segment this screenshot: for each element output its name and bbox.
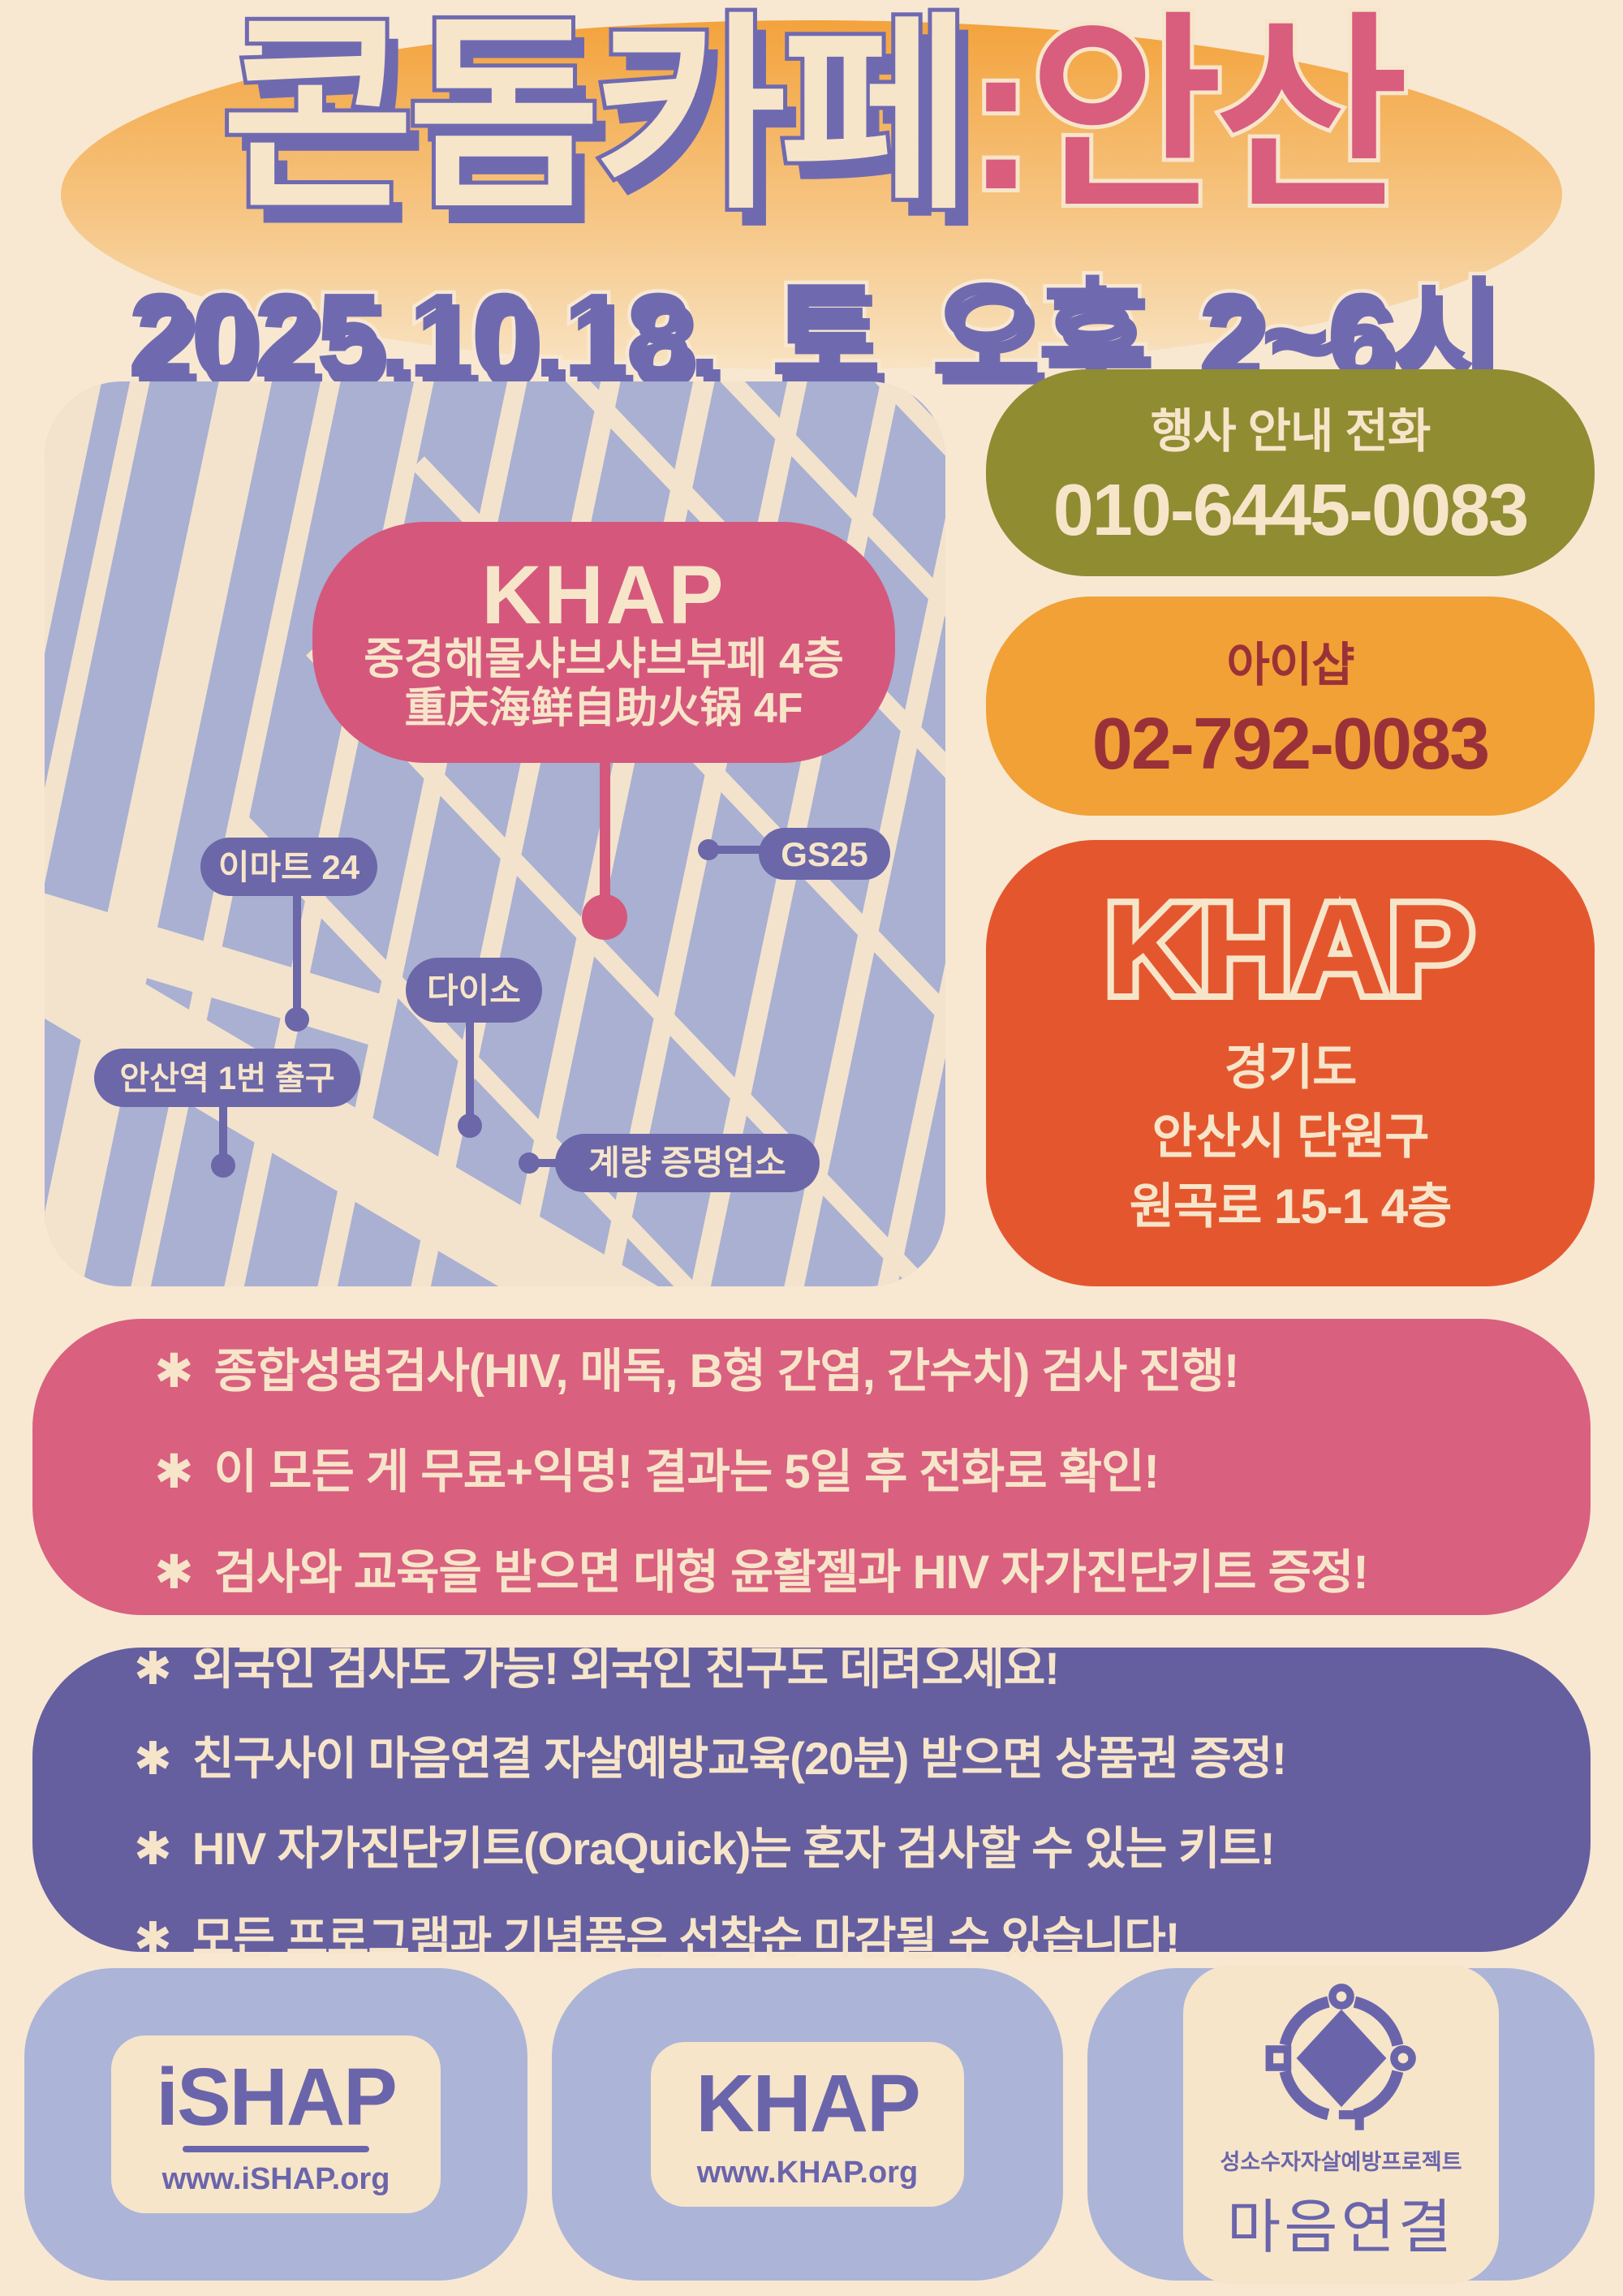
venue-name: KHAP	[1105, 885, 1475, 1014]
asterisk-bullet-icon: ✱	[134, 1822, 171, 1876]
footer-maum-box: 성소수자자살예방프로젝트 마음연결	[1087, 1968, 1595, 2281]
map-label-gs25: GS25	[781, 835, 867, 873]
callout-line1: 중경해물샤브샤브부페 4층	[364, 635, 844, 683]
venue-address-box: KHAP 경기도 안산시 단원구 원곡로 15-1 4층	[986, 840, 1595, 1286]
ishap-url: www.iSHAP.org	[156, 2162, 396, 2197]
ishap-phone-box: 아이샵 02-792-0083	[986, 597, 1595, 816]
emart-dot-icon	[285, 1007, 309, 1032]
callout-line2: 重庆海鲜自助火锅 4F	[404, 685, 803, 732]
map-label-daiso: 다이소	[427, 971, 521, 1010]
map-canvas: KHAP 중경해물샤브샤브부페 4층 重庆海鲜自助火锅 4F 이마트 24 GS…	[45, 381, 945, 1286]
khap-url: www.KHAP.org	[695, 2156, 919, 2190]
khap-logo-text: KHAP	[695, 2063, 919, 2144]
event-poster: 콘돔카페:안산 2025.10.18. 토 오후 2~6시	[0, 0, 1623, 2296]
venue-address-line: 안산시 단원구	[1152, 1102, 1429, 1171]
ishap-phone-label: 아이샵	[1226, 627, 1354, 695]
footer-ishap-box: iSHAP www.iSHAP.org	[24, 1968, 527, 2281]
ishap-logo: iSHAP www.iSHAP.org	[111, 2035, 441, 2213]
asterisk-bullet-icon: ✱	[134, 1912, 171, 1966]
maum-name-text: 마음연결	[1220, 2179, 1462, 2264]
footer-khap-box: KHAP www.KHAP.org	[552, 1968, 1063, 2281]
poster-title: 콘돔카페:안산	[0, 6, 1623, 226]
title-main: 콘돔카페	[222, 0, 966, 233]
maum-emblem-icon	[1264, 1981, 1419, 2135]
notice-item: ✱ 모든 프로그램과 기념품은 선착순 마감될 수 있습니다!	[134, 1902, 1489, 1968]
map-label-measure: 계량 증명업소	[588, 1144, 786, 1182]
service-text: 종합성병검사(HIV, 매독, B형 간염, 간수치) 검사 진행!	[214, 1333, 1239, 1401]
emart-connector	[293, 896, 301, 1014]
ishap-phone-number: 02-792-0083	[1092, 703, 1488, 786]
event-phone-box: 행사 안내 전화 010-6445-0083	[986, 369, 1595, 576]
notice-text: HIV 자가진단키트(OraQuick)는 혼자 검사할 수 있는 키트!	[192, 1812, 1275, 1878]
map-label-emart: 이마트 24	[218, 848, 360, 886]
asterisk-bullet-icon: ✱	[154, 1343, 193, 1398]
service-item: ✱ 검사와 교육을 받으면 대형 윤활젤과 HIV 자가진단키트 증정!	[154, 1534, 1469, 1602]
callout-venue-name: KHAP	[481, 549, 725, 641]
ishap-logo-underline	[183, 2146, 370, 2152]
event-phone-number: 010-6445-0083	[1053, 469, 1528, 553]
venue-address-line: 경기도	[1225, 1033, 1357, 1102]
notices-box: ✱ 외국인 검사도 가능! 외국인 친구도 데려오세요! ✱ 친구사이 마음연결…	[32, 1648, 1591, 1952]
asterisk-bullet-icon: ✱	[134, 1642, 171, 1695]
asterisk-bullet-icon: ✱	[154, 1444, 193, 1499]
station-connector	[219, 1105, 227, 1157]
daiso-dot-icon	[458, 1114, 482, 1138]
asterisk-bullet-icon: ✱	[134, 1732, 171, 1786]
notice-text: 모든 프로그램과 기념품은 선착순 마감될 수 있습니다!	[192, 1902, 1179, 1968]
map-landmarks: 이마트 24 GS25 다이소 안산역 1번 출구	[94, 828, 890, 1192]
maum-project-text: 성소수자자살예방프로젝트	[1220, 2144, 1462, 2176]
event-phone-label: 행사 안내 전화	[1151, 393, 1430, 461]
khap-logo: KHAP www.KHAP.org	[651, 2042, 963, 2207]
service-text: 이 모든 게 무료+익명! 결과는 5일 후 전화로 확인!	[214, 1433, 1159, 1501]
ishap-logo-text: iSHAP	[156, 2057, 396, 2138]
map-label-station: 안산역 1번 출구	[119, 1061, 334, 1096]
notice-item: ✱ 외국인 검사도 가능! 외국인 친구도 데려오세요!	[134, 1632, 1489, 1698]
service-item: ✱ 종합성병검사(HIV, 매독, B형 간염, 간수치) 검사 진행!	[154, 1333, 1469, 1401]
service-item: ✱ 이 모든 게 무료+익명! 결과는 5일 후 전화로 확인!	[154, 1433, 1469, 1501]
daiso-connector	[466, 1021, 474, 1118]
venue-marker-icon	[582, 894, 627, 940]
notice-item: ✱ 친구사이 마음연결 자살예방교육(20분) 받으면 상품권 증정!	[134, 1722, 1489, 1788]
gs25-connector	[715, 846, 764, 854]
title-suffix: :안산	[966, 0, 1401, 233]
callout-stem	[600, 755, 610, 909]
notice-item: ✱ HIV 자가진단키트(OraQuick)는 혼자 검사할 수 있는 키트!	[134, 1812, 1489, 1878]
service-text: 검사와 교육을 받으면 대형 윤활젤과 HIV 자가진단키트 증정!	[214, 1534, 1368, 1602]
notice-text: 외국인 검사도 가능! 외국인 친구도 데려오세요!	[192, 1632, 1059, 1698]
services-box: ✱ 종합성병검사(HIV, 매독, B형 간염, 간수치) 검사 진행! ✱ 이…	[32, 1319, 1591, 1615]
venue-address-line: 원곡로 15-1 4층	[1130, 1172, 1452, 1241]
maum-logo: 성소수자자살예방프로젝트 마음연결	[1183, 1965, 1498, 2284]
station-dot-icon	[211, 1153, 235, 1178]
asterisk-bullet-icon: ✱	[154, 1544, 193, 1600]
notice-text: 친구사이 마음연결 자살예방교육(20분) 받으면 상품권 증정!	[192, 1722, 1286, 1788]
venue-map: KHAP 중경해물샤브샤브부페 4층 重庆海鲜自助火锅 4F 이마트 24 GS…	[45, 381, 945, 1286]
